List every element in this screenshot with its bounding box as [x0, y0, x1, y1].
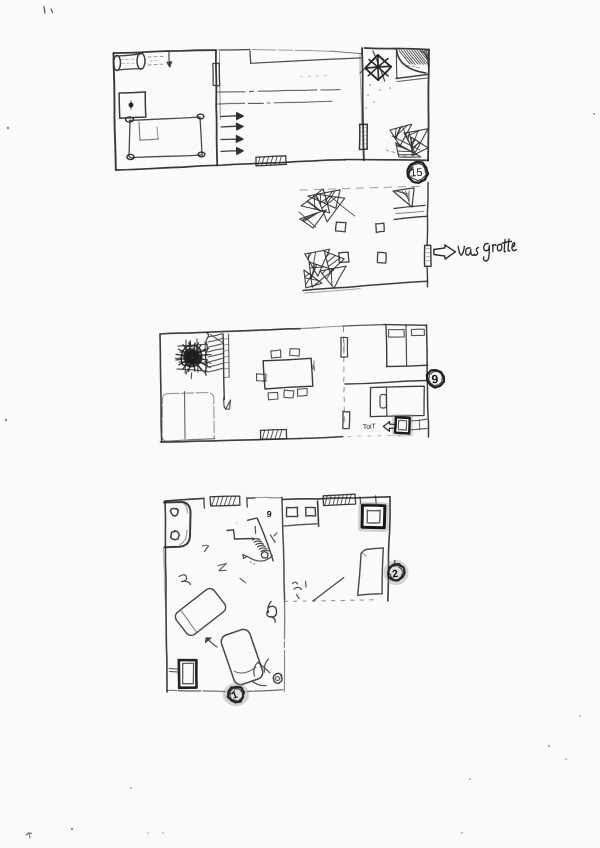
svg-text:9: 9: [266, 509, 272, 519]
svg-text:ToiT: ToiT: [363, 423, 376, 431]
